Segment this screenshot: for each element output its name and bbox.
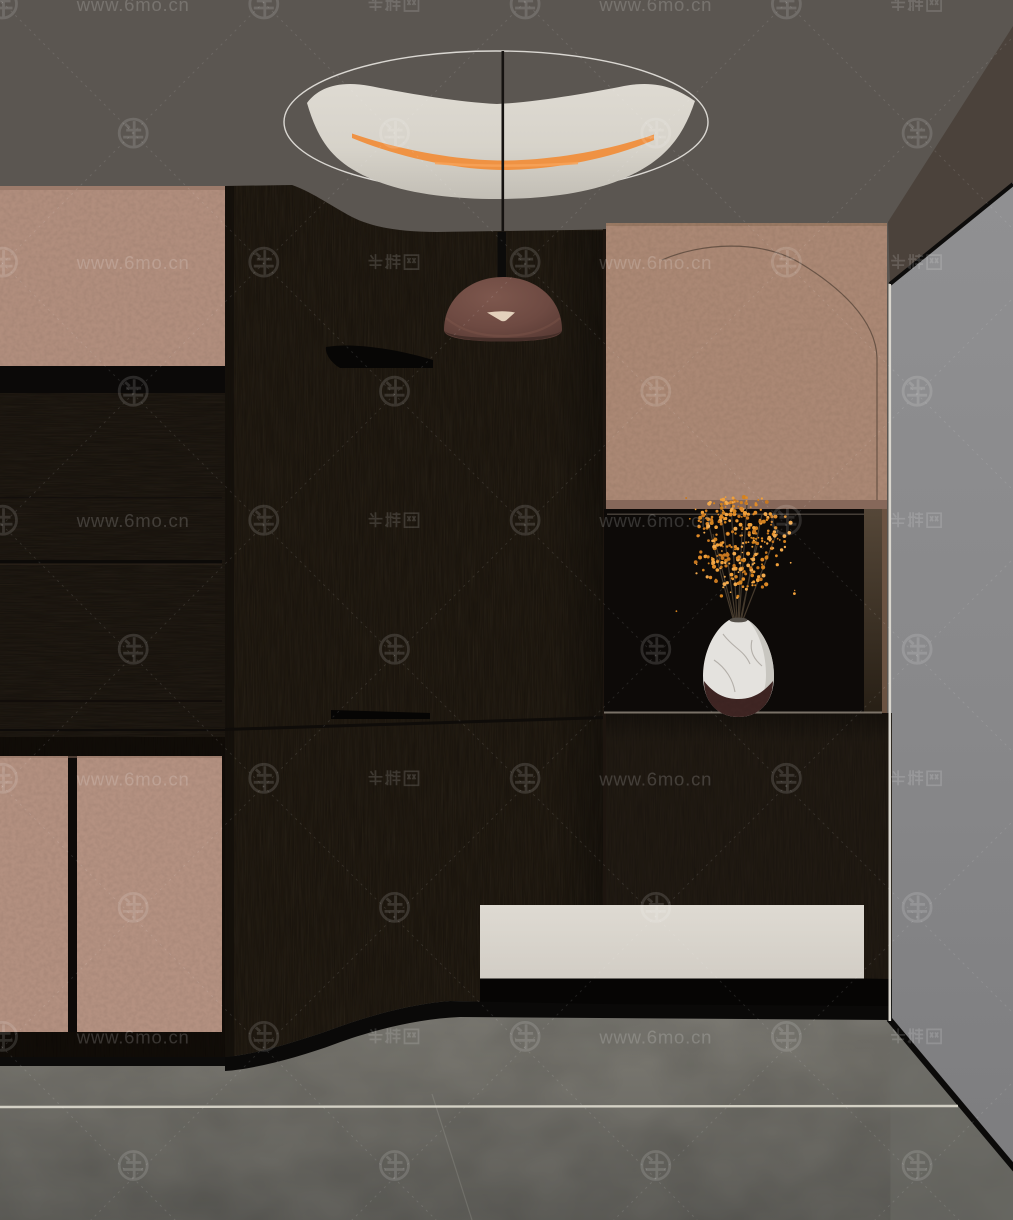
svg-text:www.6mo.cn: www.6mo.cn xyxy=(598,0,712,15)
svg-text:www.6mo.cn: www.6mo.cn xyxy=(76,768,190,789)
svg-text:www.6mo.cn: www.6mo.cn xyxy=(598,1026,712,1047)
svg-text:www.6mo.cn: www.6mo.cn xyxy=(76,0,190,15)
svg-text:www.6mo.cn: www.6mo.cn xyxy=(598,768,712,789)
svg-text:www.6mo.cn: www.6mo.cn xyxy=(76,510,190,531)
svg-text:www.6mo.cn: www.6mo.cn xyxy=(76,252,190,273)
svg-text:www.6mo.cn: www.6mo.cn xyxy=(598,252,712,273)
svg-text:www.6mo.cn: www.6mo.cn xyxy=(598,510,712,531)
svg-text:www.6mo.cn: www.6mo.cn xyxy=(76,1026,190,1047)
